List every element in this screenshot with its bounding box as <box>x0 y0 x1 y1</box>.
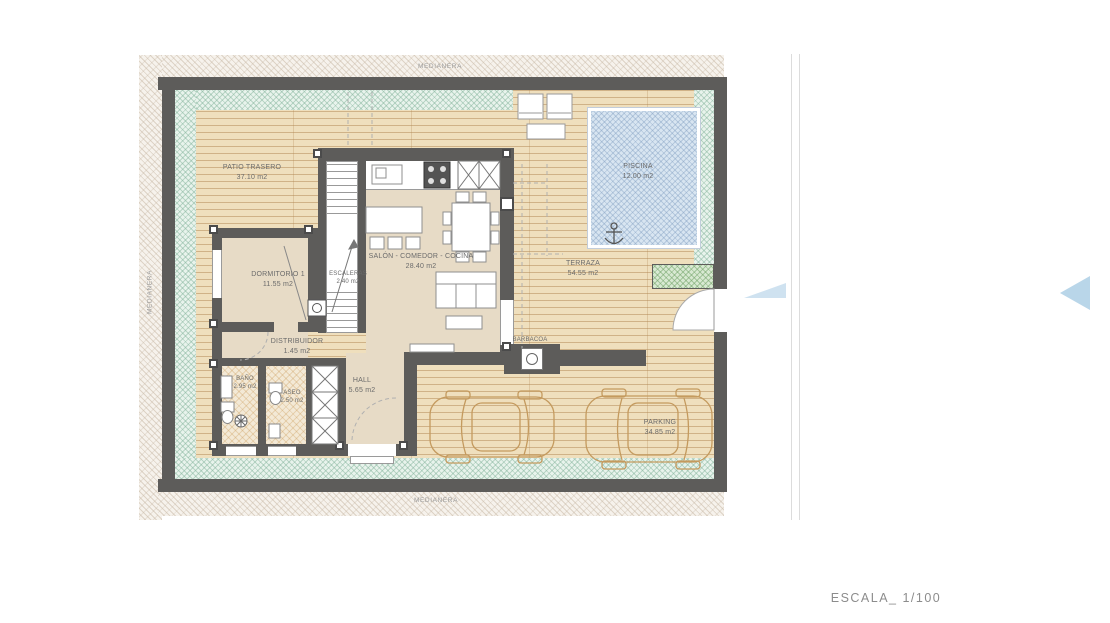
entry-step <box>350 456 394 464</box>
street-line-1 <box>791 54 792 520</box>
room-label-hall: HALL 5.65 m2 <box>349 376 376 396</box>
kitchen-counter <box>366 161 500 190</box>
boundary-label-top: MEDIANERA <box>418 63 462 70</box>
room-name: ESCALERAS <box>329 270 367 278</box>
wall-kitchen-top <box>318 148 514 161</box>
room-name: PISCINA <box>623 162 654 172</box>
room-area: 2.95 m2 <box>233 383 256 391</box>
room-name: DORMITORIO 1 <box>251 270 305 280</box>
wall-salon-south <box>404 352 514 365</box>
wall-salon-right-a <box>500 161 514 197</box>
room-hall <box>346 353 404 444</box>
room-label-terraza: TERRAZA 54.55 m2 <box>566 259 600 279</box>
room-label-bano: BAÑO 2.95 m2 <box>233 375 256 392</box>
gate-marker-triangle <box>744 283 786 298</box>
room-name: ASEO <box>280 389 303 397</box>
room-area: 12.00 m2 <box>623 172 654 182</box>
room-area: 5.65 m2 <box>349 386 376 396</box>
room-label-patio-trasero: PATIO TRASERO 37.10 m2 <box>223 163 281 183</box>
door-gap-dormitorio <box>274 322 298 332</box>
column <box>502 149 511 158</box>
window-aseo <box>268 446 296 456</box>
room-name: PARKING <box>644 418 676 428</box>
entry-door-gap <box>348 444 396 456</box>
room-label-distribuidor: DISTRIBUIDOR 1.45 m2 <box>271 337 324 357</box>
room-area: 11.55 m2 <box>251 280 305 290</box>
room-name: BAÑO <box>233 375 256 383</box>
room-label-piscina: PISCINA 12.00 m2 <box>623 162 654 182</box>
column <box>502 342 511 351</box>
stairwell <box>326 161 358 333</box>
column <box>209 319 218 328</box>
room-area: 54.55 m2 <box>566 269 600 279</box>
room-label-escaleras: ESCALERAS 2.40 m2 <box>329 270 367 287</box>
wall-outer-bottom <box>158 479 727 492</box>
window-dormitorio <box>212 250 222 298</box>
window-bano <box>226 446 256 456</box>
wall-outer-top <box>158 77 727 90</box>
wall-stairs-east <box>358 161 366 333</box>
room-area: 1.45 m2 <box>271 347 324 357</box>
room-name: DISTRIBUIDOR <box>271 337 324 347</box>
stair-treads-upper <box>327 164 357 216</box>
wall-salon-right-b <box>500 211 514 300</box>
wall-bano-aseo <box>258 366 266 448</box>
room-area: 2.50 m2 <box>280 397 303 405</box>
column <box>209 359 218 368</box>
wall-outer-left <box>162 77 175 492</box>
column <box>335 441 344 450</box>
room-label-parking: PARKING 34.85 m2 <box>644 418 676 438</box>
wall-outer-right-lower <box>714 332 727 492</box>
room-area: 28.40 m2 <box>369 262 474 272</box>
room-label-aseo: ASEO 2.50 m2 <box>280 389 303 406</box>
wall-bath-top <box>212 358 346 366</box>
street-line-2 <box>799 54 800 520</box>
floor-plan-page: { "drawing": { "scale_label": "ESCALA_ 1… <box>0 0 1110 623</box>
room-area: 34.85 m2 <box>644 428 676 438</box>
column <box>399 441 408 450</box>
wall-aseo-shower <box>306 366 312 448</box>
wall-outer-right-upper <box>714 77 727 289</box>
garden-strip-top <box>175 90 513 110</box>
stair-treads-lower <box>327 292 357 332</box>
room-name: TERRAZA <box>566 259 600 269</box>
barbecue-top <box>521 348 543 370</box>
boundary-strip-bottom <box>158 492 724 516</box>
room-label-salon: SALÓN - COMEDOR - COCINA 28.40 m2 <box>369 252 474 272</box>
column <box>313 149 322 158</box>
room-name: BARBACOA <box>513 336 548 344</box>
scale-label: ESCALA_ 1/100 <box>831 591 942 605</box>
room-area: 37.10 m2 <box>223 173 281 183</box>
room-label-dormitorio1: DORMITORIO 1 11.55 m2 <box>251 270 305 290</box>
boundary-label-left: MEDIANERA <box>147 270 154 314</box>
boundary-label-bottom: MEDIANERA <box>414 497 458 504</box>
column <box>209 441 218 450</box>
room-area: 2.40 m2 <box>329 278 367 286</box>
garden-strip-left <box>175 90 196 479</box>
lawn-strip <box>652 264 714 289</box>
room-name: HALL <box>349 376 376 386</box>
wall-dormitorio-top <box>212 228 316 238</box>
garden-strip-bottom <box>175 458 714 479</box>
column-salon-right <box>500 197 514 211</box>
wall-shower-hall <box>338 366 346 448</box>
room-name: SALÓN - COMEDOR - COCINA <box>369 252 474 262</box>
room-label-barbacoa: BARBACOA <box>513 336 548 344</box>
wall-dormitorio-right <box>308 228 326 332</box>
wall-terraza-bench <box>558 350 646 366</box>
column <box>209 225 218 234</box>
column <box>304 225 313 234</box>
room-name: PATIO TRASERO <box>223 163 281 173</box>
previous-image-arrow-icon[interactable] <box>1060 276 1090 310</box>
